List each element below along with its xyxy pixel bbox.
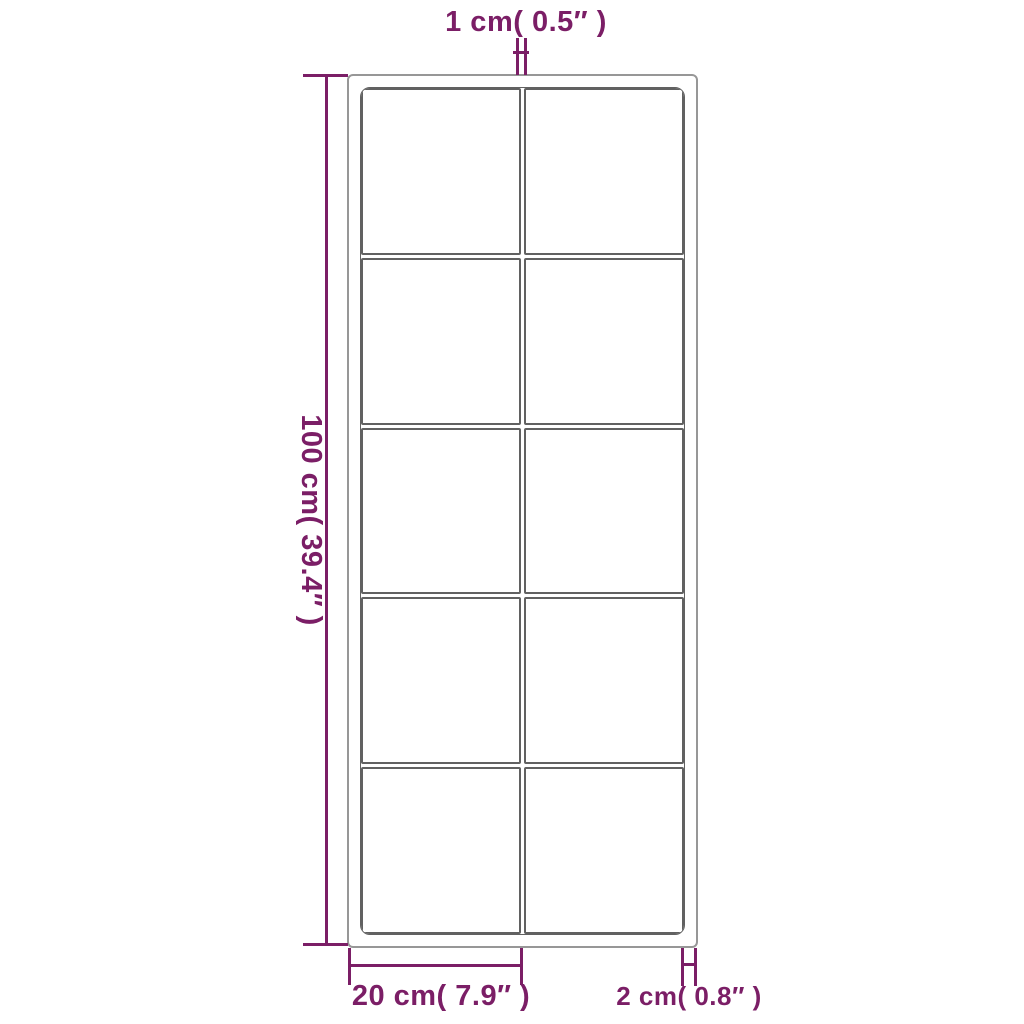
mirror-pane [524, 258, 684, 425]
pane-width-dimension-line [350, 964, 522, 967]
pane-width-label: 20 cm( 7.9″ ) [341, 980, 541, 1012]
height-dimension-tick-top [303, 74, 348, 77]
mirror-pane [361, 428, 521, 595]
frame-border-marker-crossbar [681, 963, 697, 966]
mirror-pane [361, 88, 521, 255]
mirror-pane [524, 428, 684, 595]
mirror-pane [361, 258, 521, 425]
mirror-pane [524, 597, 684, 764]
divider-width-marker-crossbar [513, 51, 529, 54]
mirror-pane [524, 88, 684, 255]
frame-border-width-label: 2 cm( 0.8″ ) [589, 980, 789, 1012]
frame-pane-grid [360, 87, 685, 935]
height-dimension-label: 100 cm( 39.4″ ) [291, 360, 327, 680]
mirror-pane [361, 597, 521, 764]
divider-width-label: 1 cm( 0.5″ ) [426, 6, 626, 38]
mirror-pane [361, 767, 521, 934]
divider-width-marker-right [524, 38, 527, 75]
divider-width-marker-left [516, 38, 519, 75]
product-dimension-diagram: 100 cm( 39.4″ ) 1 cm( 0.5″ ) 20 cm( 7.9″… [0, 0, 1024, 1024]
height-dimension-tick-bottom [303, 943, 348, 946]
mirror-pane [524, 767, 684, 934]
